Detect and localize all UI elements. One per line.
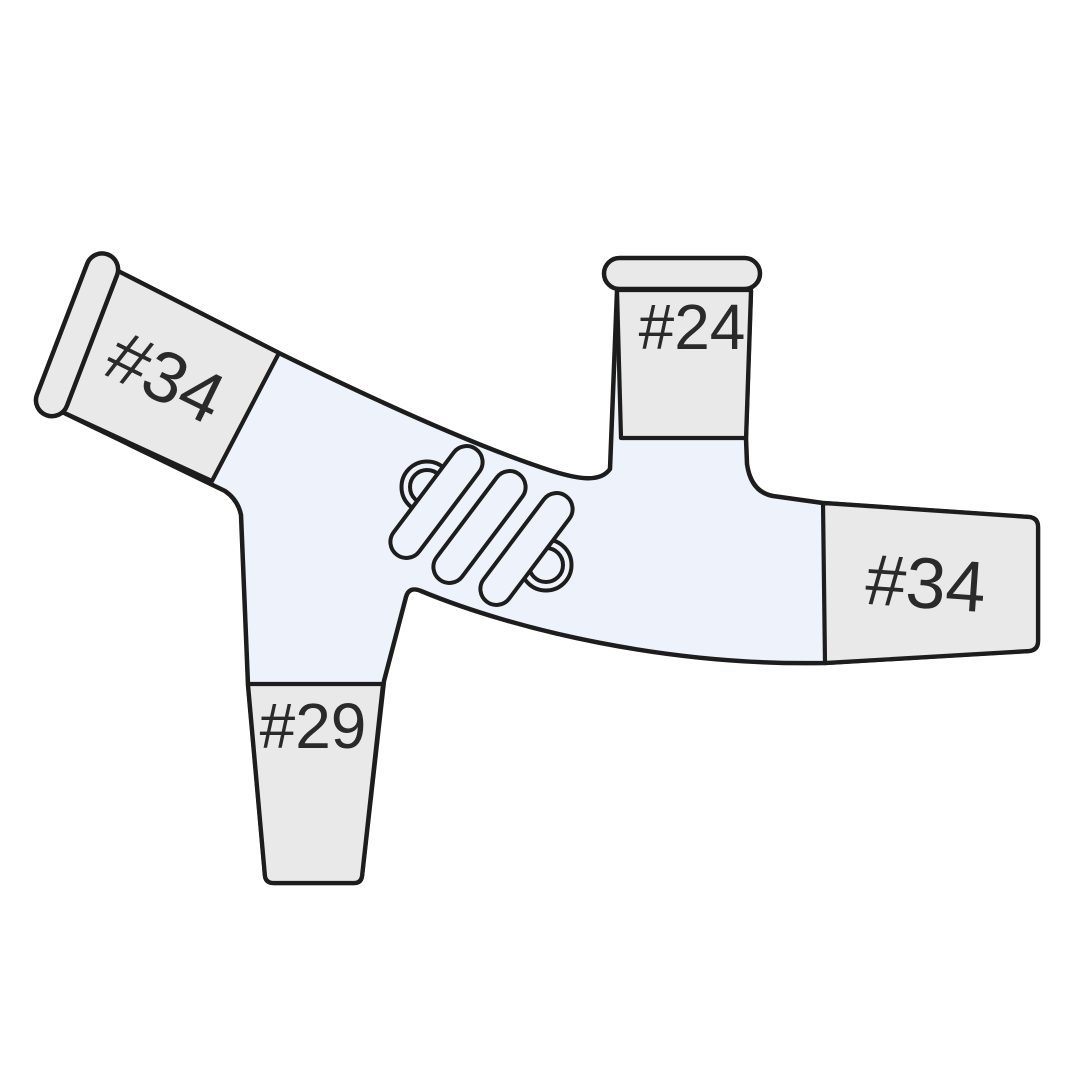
rim-top: [604, 258, 760, 289]
joint-label-right: #34: [863, 540, 988, 628]
glassware-diagram-canvas: #34 #24 #34 #29: [0, 0, 1080, 1080]
joint-label-top: #24: [639, 291, 746, 363]
glassware-diagram: #34 #24 #34 #29: [0, 0, 1080, 1080]
joint-label-bottom: #29: [260, 690, 367, 762]
